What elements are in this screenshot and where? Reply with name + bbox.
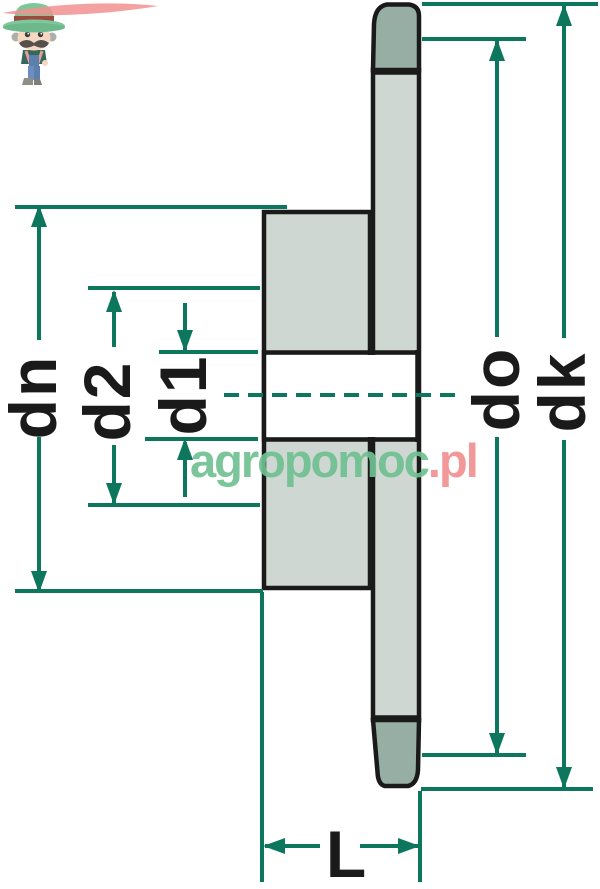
dim-dn-extension-top: [15, 205, 287, 209]
watermark-brand: agropomoc: [190, 434, 428, 487]
tooth-tip-top: [373, 5, 419, 71]
L-arrow-left: [263, 838, 285, 854]
dim-d1-extension-top: [159, 350, 258, 354]
label-d1: d1: [150, 354, 216, 435]
dk-arrow-bottom: [556, 767, 572, 789]
watermark-swoosh: [0, 0, 162, 20]
dk-arrow-top: [556, 4, 572, 26]
dim-dk-line-upper: [562, 6, 566, 338]
dim-do-extension-top: [422, 37, 526, 41]
dim-do-line-lower: [495, 437, 499, 753]
dim-dn-line-lower: [37, 437, 41, 589]
label-dn: dn: [0, 355, 66, 440]
dim-dn-extension-bottom: [15, 589, 263, 593]
dim-L-extension-right: [418, 791, 422, 882]
dn-arrow-bottom: [31, 571, 47, 593]
label-d2: d2: [74, 360, 140, 441]
label-do: do: [463, 347, 529, 432]
label-L: L: [326, 821, 368, 887]
d2-arrow-top: [106, 290, 122, 312]
L-arrow-right: [398, 838, 420, 854]
watermark-domain-suffix: .pl: [428, 434, 477, 487]
watermark-text: agropomoc.pl: [190, 437, 477, 484]
technical-drawing-canvas: dn d2 d1 do dk L: [0, 0, 600, 889]
dim-do-extension-bottom: [422, 753, 526, 757]
dim-do-line-upper: [495, 41, 499, 337]
do-arrow-top: [489, 39, 505, 61]
tooth-tip-bottom: [373, 720, 419, 786]
dn-arrow-top: [31, 205, 47, 227]
d2-arrow-bottom: [106, 483, 122, 505]
dim-dk-line-lower: [562, 440, 566, 787]
label-dk: dk: [529, 351, 595, 432]
d1-arrow-top: [177, 330, 193, 352]
do-arrow-bottom: [489, 733, 505, 755]
